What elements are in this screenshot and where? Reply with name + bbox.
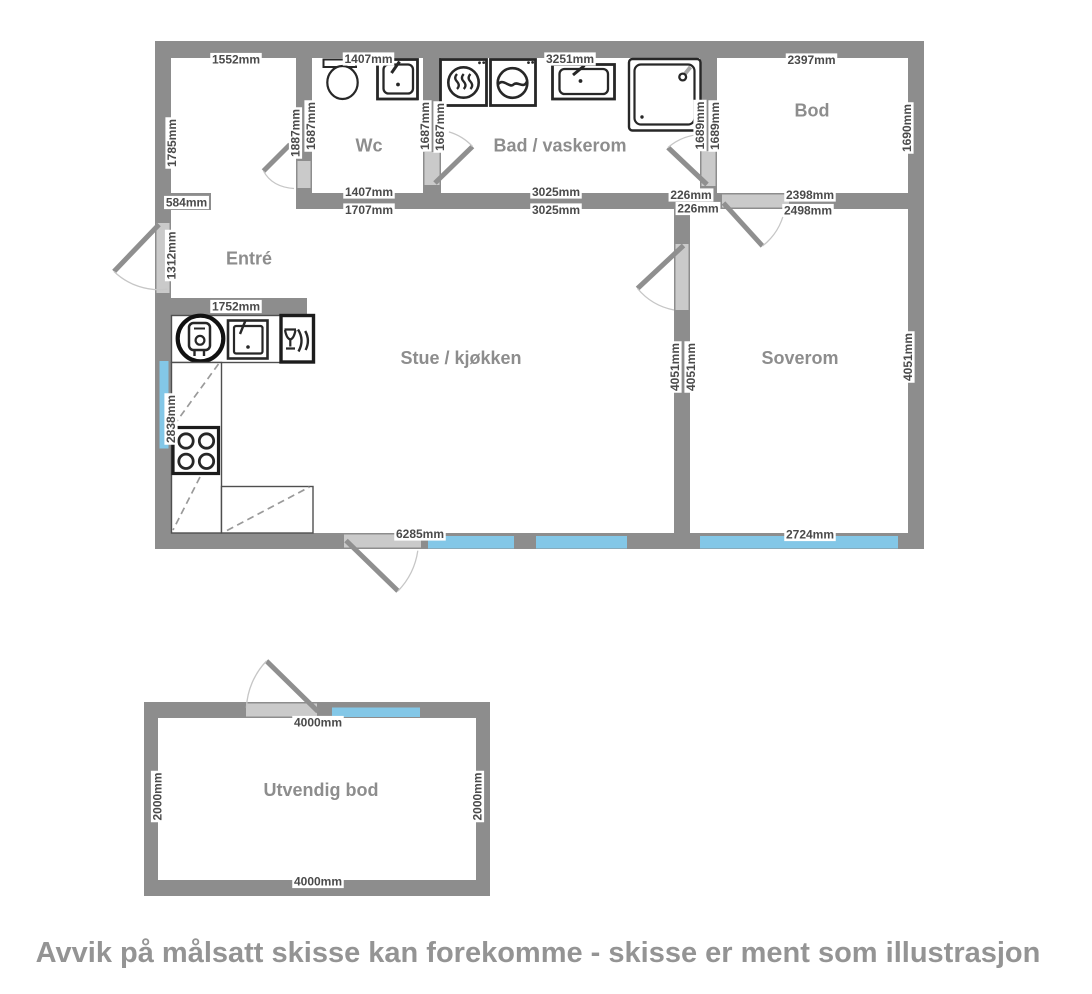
svg-text:1690mm: 1690mm bbox=[900, 104, 914, 152]
svg-text:1312mm: 1312mm bbox=[165, 231, 179, 279]
svg-text:3025mm: 3025mm bbox=[532, 203, 580, 217]
svg-text:4051mm: 4051mm bbox=[901, 333, 915, 381]
svg-text:3025mm: 3025mm bbox=[532, 185, 580, 199]
svg-text:2397mm: 2397mm bbox=[787, 53, 835, 67]
svg-text:Stue / kjøkken: Stue / kjøkken bbox=[400, 348, 521, 368]
svg-text:Bad / vaskerom: Bad / vaskerom bbox=[493, 136, 626, 156]
svg-text:1707mm: 1707mm bbox=[345, 203, 393, 217]
svg-text:6285mm: 6285mm bbox=[396, 527, 444, 541]
svg-text:1785mm: 1785mm bbox=[165, 119, 179, 167]
svg-text:3251mm: 3251mm bbox=[546, 52, 594, 66]
svg-text:1552mm: 1552mm bbox=[212, 53, 260, 67]
svg-text:1689mm: 1689mm bbox=[693, 101, 707, 149]
svg-text:2000mm: 2000mm bbox=[151, 772, 165, 820]
svg-text:Bod: Bod bbox=[795, 101, 830, 121]
svg-text:1687mm: 1687mm bbox=[418, 102, 432, 150]
svg-text:1407mm: 1407mm bbox=[344, 52, 392, 66]
svg-text:226mm: 226mm bbox=[677, 202, 718, 216]
svg-text:2398mm: 2398mm bbox=[786, 188, 834, 202]
svg-text:Soverom: Soverom bbox=[761, 348, 838, 368]
svg-text:Avvik på målsatt skisse kan fo: Avvik på målsatt skisse kan forekomme - … bbox=[36, 937, 1041, 969]
svg-text:4051mm: 4051mm bbox=[668, 343, 682, 391]
svg-text:1687mm: 1687mm bbox=[433, 103, 447, 151]
svg-text:1407mm: 1407mm bbox=[345, 185, 393, 199]
svg-text:2498mm: 2498mm bbox=[784, 204, 832, 218]
svg-text:Entré: Entré bbox=[226, 249, 272, 269]
svg-text:1689mm: 1689mm bbox=[708, 102, 722, 150]
svg-text:Wc: Wc bbox=[356, 136, 383, 156]
svg-text:1752mm: 1752mm bbox=[212, 300, 260, 314]
svg-text:2838mm: 2838mm bbox=[164, 395, 178, 443]
svg-text:2000mm: 2000mm bbox=[471, 772, 485, 820]
svg-text:2724mm: 2724mm bbox=[786, 528, 834, 542]
svg-text:4000mm: 4000mm bbox=[294, 716, 342, 730]
svg-text:1887mm: 1887mm bbox=[289, 109, 303, 157]
svg-text:4000mm: 4000mm bbox=[294, 875, 342, 889]
svg-text:584mm: 584mm bbox=[166, 196, 207, 210]
svg-text:226mm: 226mm bbox=[670, 188, 711, 202]
svg-text:Utvendig bod: Utvendig bod bbox=[264, 780, 379, 800]
svg-text:1687mm: 1687mm bbox=[304, 102, 318, 150]
svg-text:4051mm: 4051mm bbox=[684, 343, 698, 391]
